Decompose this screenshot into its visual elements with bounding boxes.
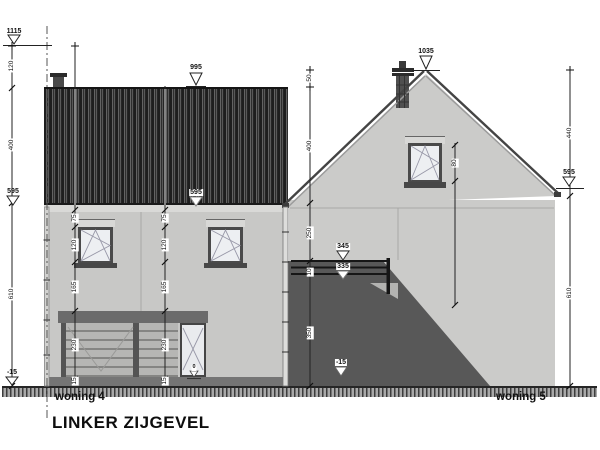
level-chimney-top: 1115 [7, 28, 22, 35]
level-rail-top: 345 [336, 243, 350, 250]
dim-left-1: 120 [9, 60, 16, 73]
dim-mid-3: 250 [307, 227, 314, 240]
dim-mid-2: 400 [307, 140, 314, 153]
dim-a-3: 165 [72, 281, 79, 294]
window-b-sill [204, 263, 247, 268]
dim-b-4: 230 [162, 339, 169, 352]
level-roof-left: 995 [190, 64, 202, 71]
window-right-sill [404, 182, 446, 188]
window-b [208, 227, 243, 264]
level-door-floor: 0 [191, 365, 196, 371]
label-woning-5: woning 5 [496, 392, 546, 404]
level-wall-top: 335 [336, 263, 350, 270]
dim-b-3: 165 [162, 281, 169, 294]
window-a-sill [74, 263, 117, 268]
dim-b-5: 15 [162, 376, 169, 385]
roof-vent [53, 77, 64, 87]
level-ground-left: -15 [7, 369, 17, 376]
dim-b-2: 120 [162, 239, 169, 252]
garage-lintel [58, 311, 208, 323]
elevation-drawing: 1115 995 595 595 595 1035 345 335 -15 -1… [0, 0, 600, 450]
dim-mid-4: 10 [307, 267, 314, 276]
dimension-crosses [8, 42, 574, 91]
level-floor-left: 595 [7, 188, 19, 195]
window-b-header [206, 219, 245, 227]
dim-a-1: 75 [72, 213, 79, 222]
chimney-body [396, 76, 409, 108]
dim-mid-1: 50 [307, 73, 314, 82]
dim-b-1: 75 [162, 213, 169, 222]
level-ground-center: -15 [335, 359, 347, 366]
dim-right-2: 610 [567, 287, 574, 300]
left-house-floor-band [44, 205, 288, 212]
dim-a-4: 230 [72, 339, 79, 352]
level-eaves-right: 595 [563, 169, 575, 176]
window-a-header [76, 219, 115, 227]
dim-a-2: 120 [72, 239, 79, 252]
left-house-siding-upper [44, 87, 288, 205]
garage-jamb-left [61, 323, 66, 377]
dim-window-right: 80 [452, 158, 459, 167]
dim-right-1: 440 [567, 127, 574, 140]
dim-left-3: 610 [9, 288, 16, 301]
window-a [78, 227, 113, 264]
window-right [408, 143, 442, 183]
dim-left-2: 400 [9, 139, 16, 152]
garage-mullion [133, 323, 139, 377]
label-woning-4: woning 4 [55, 392, 105, 404]
dim-a-5: 15 [72, 376, 79, 385]
chimney-pipe [399, 61, 406, 68]
level-ridge: 1035 [418, 48, 434, 55]
dim-mid-5: 350 [307, 327, 314, 340]
level-floor-center: 595 [189, 189, 203, 196]
right-house-wall [289, 200, 555, 386]
page-title: LINKER ZIJGEVEL [52, 414, 210, 431]
chimney-cap-upper [392, 68, 414, 72]
